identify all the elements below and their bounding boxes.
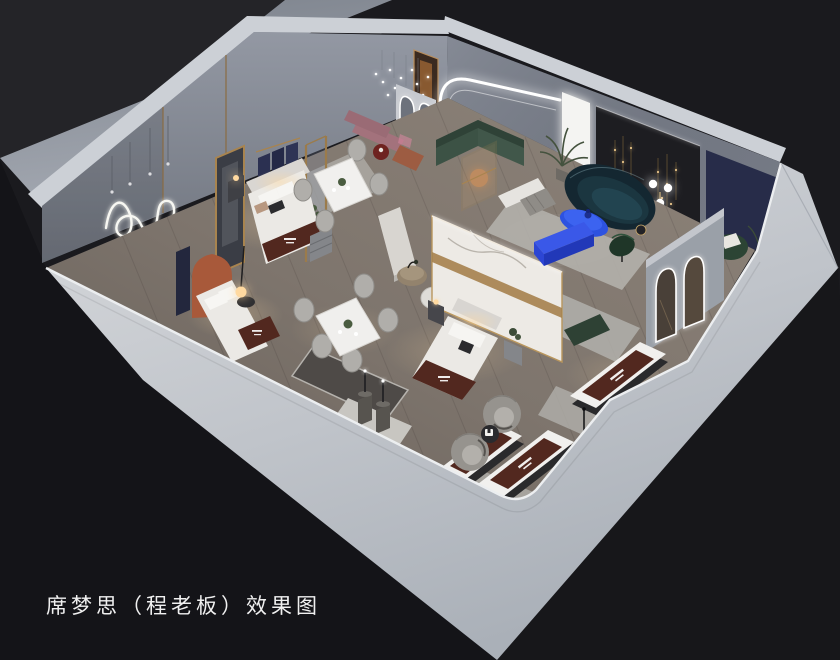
caption: 席梦思（程老板）效果图 bbox=[46, 594, 321, 618]
navy-side-panel bbox=[176, 246, 190, 316]
framed-mirror-panel bbox=[216, 146, 244, 274]
side-table-u bbox=[481, 425, 499, 443]
showroom-render: 席梦思（程老板）效果图 bbox=[0, 0, 840, 660]
render-image: 席梦思（程老板）效果图 bbox=[0, 0, 840, 660]
side-table bbox=[636, 225, 646, 235]
